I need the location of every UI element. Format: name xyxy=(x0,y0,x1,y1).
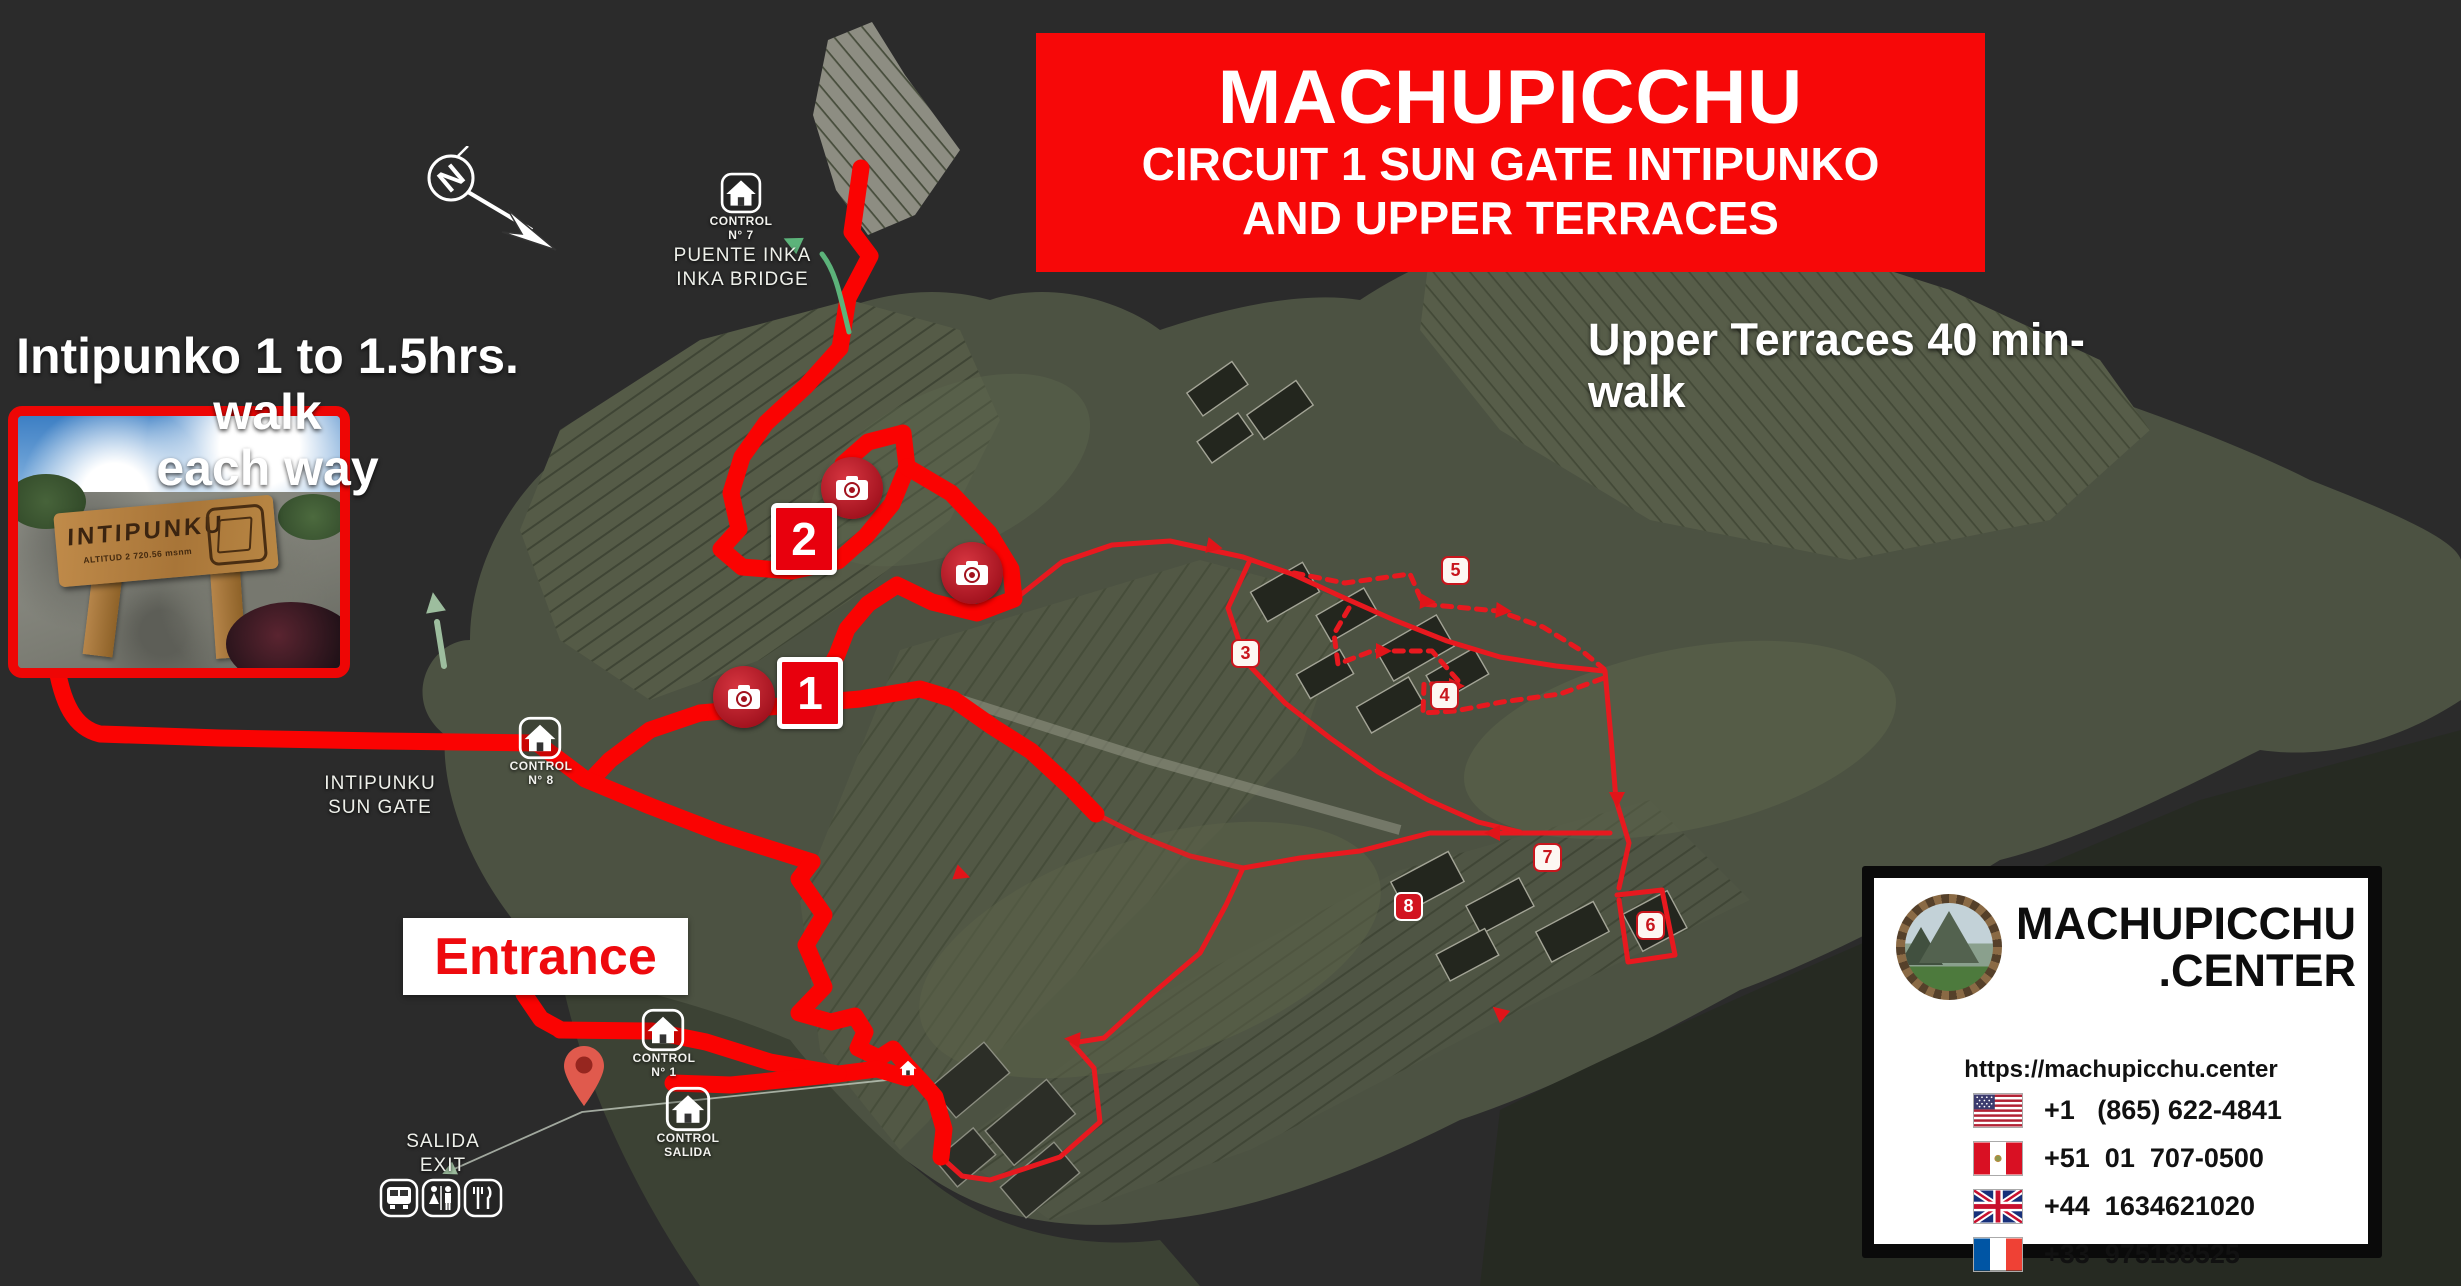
bus-stop-icon xyxy=(379,1178,419,1218)
inka-bridge-label: PUENTE INKAINKA BRIDGE xyxy=(655,244,830,292)
route-marker-1: 1 xyxy=(777,657,843,729)
phone-row-peru: +51 01 707-0500 xyxy=(1974,1140,2264,1176)
site-marker-8: 8 xyxy=(1394,892,1423,921)
phone-number-peru[interactable]: +51 01 707-0500 xyxy=(2044,1143,2264,1174)
control-8-house-icon xyxy=(518,716,562,760)
phone-row-france: +33 975188525 xyxy=(1974,1236,2240,1272)
uk-flag-icon xyxy=(1974,1190,2022,1223)
photo-spot-camera-icon xyxy=(941,542,1003,604)
site-marker-3: 3 xyxy=(1231,639,1260,668)
phone-row-usa: +1 (865) 622-4841 xyxy=(1974,1092,2282,1128)
control-1-house-icon xyxy=(641,1008,685,1052)
control-7-label: CONTROLN° 7 xyxy=(700,215,782,243)
upper-terraces-note: Upper Terraces 40 min-walk xyxy=(1588,314,2108,418)
phone-number-uk[interactable]: +44 1634621020 xyxy=(2044,1191,2255,1222)
machupicchu-circuit-map: N CONTROLN° 7 PUENTE INKAINKA BRIDGE CON… xyxy=(0,0,2461,1286)
site-marker-6: 6 xyxy=(1636,911,1665,940)
ticket-house-icon xyxy=(896,1056,920,1080)
site-marker-7: 7 xyxy=(1533,843,1562,872)
peru-flag-icon xyxy=(1974,1142,2022,1175)
usa-flag-icon xyxy=(1974,1094,2022,1127)
control-1-label: CONTROLN° 1 xyxy=(628,1052,700,1080)
sign-terrace-diagram xyxy=(205,503,268,566)
sign-title: INTIPUNKU xyxy=(67,511,225,553)
site-marker-4: 4 xyxy=(1430,681,1459,710)
page-title: MACHUPICCHU xyxy=(1036,59,1985,137)
sun-gate-label: INTIPUNKUSUN GATE xyxy=(300,772,460,820)
title-banner: MACHUPICCHU CIRCUIT 1 SUN GATE INTIPUNKO… xyxy=(1036,33,1985,272)
brand-card: MACHUPICCHU .CENTER https://machupicchu.… xyxy=(1862,866,2382,1258)
brand-name: MACHUPICCHU .CENTER xyxy=(1994,900,2356,995)
phone-row-uk: +44 1634621020 xyxy=(1974,1188,2255,1224)
page-subtitle-2: AND UPPER TERRACES xyxy=(1036,191,1985,245)
website-link[interactable]: https://machupicchu.center xyxy=(1874,1056,2368,1084)
entrance-label: Entrance xyxy=(403,918,688,995)
machupicchu-center-logo xyxy=(1896,894,2002,1000)
compass-north-indicator: N xyxy=(424,146,574,266)
restaurant-icon xyxy=(463,1178,503,1218)
page-subtitle-1: CIRCUIT 1 SUN GATE INTIPUNKO xyxy=(1036,137,1985,191)
control-salida-label: CONTROLSALIDA xyxy=(652,1132,724,1160)
phone-number-france[interactable]: +33 975188525 xyxy=(2044,1239,2240,1270)
control-salida-house-icon xyxy=(665,1086,711,1132)
control-7-house-icon xyxy=(720,172,762,214)
site-marker-5: 5 xyxy=(1441,556,1470,585)
restrooms-icon xyxy=(421,1178,461,1218)
france-flag-icon xyxy=(1974,1238,2022,1271)
intipunko-walk-note: Intipunko 1 to 1.5hrs. walk each way xyxy=(0,328,535,496)
control-8-label: CONTROLN° 8 xyxy=(505,760,577,788)
exit-label: SALIDAEXIT xyxy=(393,1130,493,1178)
route-marker-2: 2 xyxy=(771,503,837,575)
phone-number-usa[interactable]: +1 (865) 622-4841 xyxy=(2044,1095,2282,1126)
photo-spot-camera-icon xyxy=(713,666,775,728)
